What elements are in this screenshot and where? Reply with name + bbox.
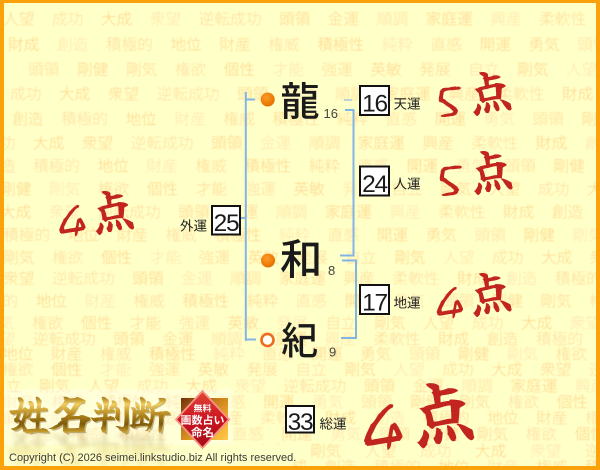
svg-text:17: 17 (362, 290, 387, 317)
svg-text:33: 33 (288, 409, 313, 436)
svg-text:16: 16 (324, 106, 338, 121)
svg-text:25: 25 (214, 210, 239, 237)
svg-text:9: 9 (329, 345, 336, 360)
svg-text:8: 8 (328, 263, 335, 278)
svg-text:24: 24 (362, 171, 387, 198)
svg-text:Copyright (C) 2026 seimei.link: Copyright (C) 2026 seimei.linkstudio.biz… (9, 452, 296, 464)
svg-text:16: 16 (362, 91, 387, 118)
